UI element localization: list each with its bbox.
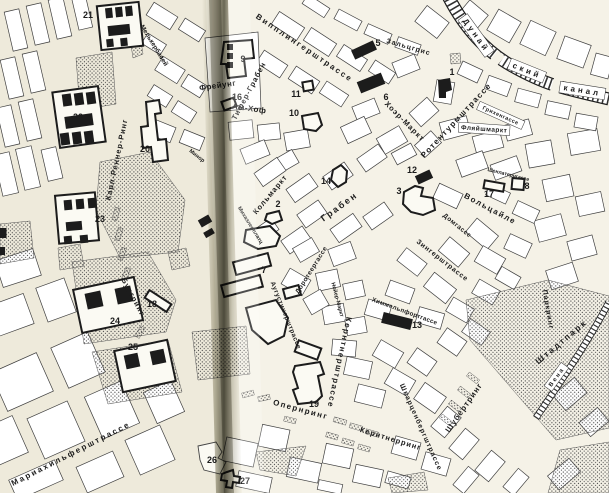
landmark-building <box>302 113 322 131</box>
landmark-number: 14 <box>321 176 331 186</box>
landmark-number: 22 <box>73 112 83 122</box>
landmark-number: 25 <box>128 342 138 352</box>
landmark-number: 12 <box>407 165 417 175</box>
landmark-number: 7 <box>261 265 266 275</box>
landmark-number: 5 <box>375 38 380 48</box>
landmark-building <box>302 81 313 92</box>
landmark-number: 11 <box>291 89 301 99</box>
landmark-building <box>0 228 7 238</box>
landmark-building <box>293 362 324 404</box>
map-page: 2122202324251891611105611423121781319726… <box>0 0 609 493</box>
landmark-number: 20 <box>140 144 150 154</box>
landmark-number: 24 <box>110 316 120 326</box>
landmark-building <box>0 247 5 255</box>
landmark-number: 10 <box>289 108 299 118</box>
landmark-number: 21 <box>83 10 93 20</box>
city-map-canvas: 2122202324251891611105611423121781319726… <box>0 0 609 493</box>
landmark-number: 3 <box>396 186 401 196</box>
landmark-number: 13 <box>412 320 422 330</box>
landmark-number: 23 <box>95 214 105 224</box>
landmark-number: 1 <box>449 67 454 77</box>
landmark-number: 17 <box>484 189 494 199</box>
landmark-building <box>265 211 282 224</box>
landmark-number: 2 <box>275 199 280 209</box>
landmark-number: 18 <box>147 299 157 309</box>
